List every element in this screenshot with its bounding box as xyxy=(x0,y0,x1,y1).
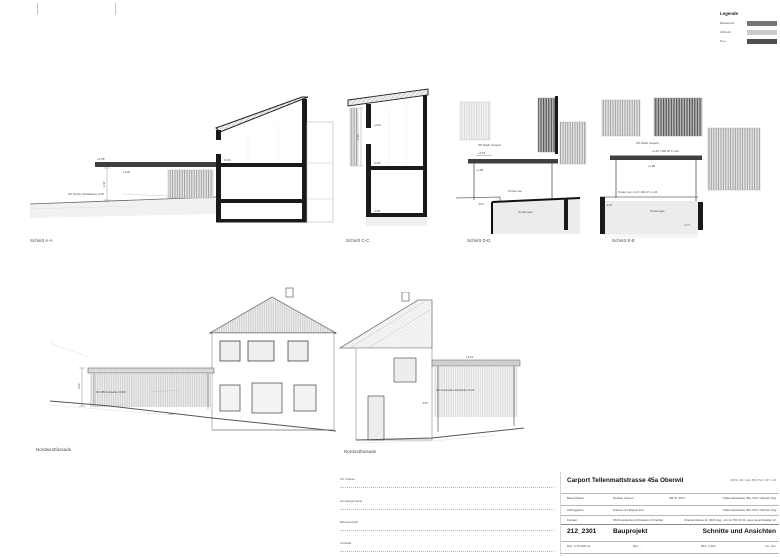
carport-elevation: 2.60 OK FB Rohdecke ±0.00 -0.87 xyxy=(50,343,214,416)
meta-rev: Rev.: - xyxy=(633,544,641,548)
title-block: Carport Tellenmattstrasse 45a Oberwil GB… xyxy=(560,472,779,556)
legend: Legende Bestehend Abbruch Neu xyxy=(720,11,778,47)
meta-scale: Mst.: 1:100 xyxy=(701,544,715,548)
level-annotation: -0.87 xyxy=(478,202,484,206)
divider xyxy=(561,524,779,525)
carport-section: OK Dach Carport +2.15 / 492.35 m.ü.M. +1… xyxy=(610,141,702,204)
level-annotation: +1.96 xyxy=(648,164,656,168)
level-annotation: +2.20 xyxy=(123,170,131,174)
fold-mark xyxy=(115,3,116,15)
legend-label-abbruch: Abbruch xyxy=(720,30,731,34)
row-address: Tellenmattstrasse 45a, 6317 Oberwil, Zug xyxy=(723,508,776,512)
dimension-annotation: 2.62 xyxy=(356,134,360,140)
house-elevation xyxy=(340,292,432,440)
nordostfassade-drawing: +2.15 OK Fussboden Rohdecke ±0.00 -0.87 xyxy=(338,292,528,454)
row-value: NM Kussbacher Architekten mb bachat xyxy=(613,518,663,522)
legend-row: Abbruch xyxy=(720,29,778,38)
caption-schnitt-ee: Schnitt E-E xyxy=(612,238,635,243)
signature-line xyxy=(340,551,554,552)
project-title: Carport Tellenmattstrasse 45a Oberwil xyxy=(567,477,683,484)
level-annotation: +2.15 / 492.35 m.ü.M. xyxy=(652,149,680,153)
legend-row: Bestehend xyxy=(720,20,778,29)
level-annotation: +2.15 xyxy=(478,151,486,155)
level-annotation: OK FB Rohdecke ±0.00 xyxy=(96,390,126,394)
signature-label-bauherrschaft: Bauherrschaft xyxy=(340,520,358,524)
level-annotation: ±0.00 xyxy=(374,161,381,165)
terrain: Terrain neu -0.10 / 492.27 m.ü.M. Terrai… xyxy=(600,190,703,238)
terrain-annotation: Terrain neu -0.10 / 492.27 m.ü.M. xyxy=(618,190,658,194)
level-annotation: -0.87 xyxy=(422,401,428,405)
legend-row: Neu xyxy=(720,38,778,47)
legend-title: Legende xyxy=(720,11,778,16)
row-address: Tellenmattstrasse 45a, 6317 Oberwil, Zug xyxy=(723,496,776,500)
caption-nordostfassade: Nordostfassade xyxy=(344,449,376,454)
house-elevation xyxy=(210,288,336,430)
terrain-annotation: OK Terrain Verkleidung -0.02 xyxy=(68,192,104,196)
terrain-annotation: Terrain neu xyxy=(508,189,522,193)
divider xyxy=(561,541,779,542)
terrain-annotation: Terrain gew. xyxy=(518,210,533,214)
signature-line xyxy=(340,530,554,531)
nordwestfassade-drawing: 2.60 OK FB Rohdecke ±0.00 -0.87 xyxy=(50,285,340,453)
caption-schnitt-cc: Schnitt C-C xyxy=(346,238,370,243)
caption-schnitt-aa: Schnitt A-A xyxy=(30,238,53,243)
schnitt-cc-drawing: 2.62 +2.69 ±0.00 -0.28 xyxy=(344,82,436,238)
fold-mark xyxy=(37,3,38,15)
row-label: Kontakt xyxy=(567,518,577,522)
caption-schnitt-dd: Schnitt D-D xyxy=(467,238,491,243)
level-annotation: +2.35 xyxy=(97,157,105,161)
schnitt-dd-drawing: OK Dach Carport +2.15 +1.98 Terrain neu … xyxy=(452,92,588,238)
meta-format: Gr.: A2+ xyxy=(765,544,776,548)
dimension-annotation: 2.60 xyxy=(77,383,81,389)
signature-line xyxy=(340,509,554,510)
level-annotation: +2.69 xyxy=(374,123,381,127)
terrain xyxy=(30,197,216,218)
carport-elevation: +2.15 OK Fussboden Rohdecke ±0.00 -0.87 xyxy=(422,355,520,432)
sheet-title: Schnitte und Ansichten xyxy=(703,528,776,535)
caption-nordwestfassade: Nordwestfassade xyxy=(36,447,71,452)
row-label: Auftraggeber xyxy=(567,508,584,512)
divider xyxy=(561,505,779,506)
schnitt-ee-drawing: OK Dach Carport +2.15 / 492.35 m.ü.M. +1… xyxy=(598,92,766,240)
level-annotation: ±0.00 xyxy=(224,158,231,162)
project-number: 212_2301 xyxy=(567,528,596,535)
legend-label-neu: Neu xyxy=(720,39,726,43)
signature-label-architekt: Architekt xyxy=(340,541,351,545)
house-section: ±0.00 xyxy=(216,97,333,223)
row-value: Andrea und Raquel Frei xyxy=(613,508,644,512)
terrain-annotation: Terrain gew. xyxy=(650,209,665,213)
plan-sheet: Legende Bestehend Abbruch Neu +2.35 xyxy=(0,0,780,558)
parcel-info: GB Nr. 404 / Geb. 636 / Parz. 427 / 4.M xyxy=(731,479,776,482)
roof-annotation: OK Dach Carport xyxy=(636,141,659,145)
meta-date: Dat.: 3.11.2021 lw xyxy=(567,544,590,548)
signature-block: Ort / Datum Grundeigentümer Bauherrschaf… xyxy=(338,472,557,556)
roof-annotation: OK Dach Carport xyxy=(478,143,501,147)
legend-swatch-neu xyxy=(747,39,777,44)
signature-label-ort-datum: Ort / Datum xyxy=(340,477,355,481)
level-annotation: OK Fussboden Rohdecke ±0.00 xyxy=(436,388,475,392)
row-address: Chamerstrasse 11, 6300 Zug, +41 41 780 0… xyxy=(684,518,776,522)
row-label: Bauvorhaben xyxy=(567,496,584,500)
row-extra: GB Nr. 2971 xyxy=(669,496,685,500)
level-annotation: +1.98 xyxy=(476,168,484,172)
carport-section: +2.35 +2.20 2.37 OK Terrain Verkleidung … xyxy=(68,157,218,200)
level-annotation: +2.15 xyxy=(466,355,474,359)
dimension-annotation: 2.37 xyxy=(102,181,106,187)
legend-label-bestehend: Bestehend xyxy=(720,21,734,25)
row-value: Neubau Carport xyxy=(613,496,634,500)
legend-swatch-bestehend xyxy=(747,21,777,26)
level-annotation: -0.22 xyxy=(606,203,612,207)
phase-label: Bauprojekt xyxy=(613,528,647,535)
level-annotation: -1.77 xyxy=(684,223,690,227)
level-annotation: -0.28 xyxy=(374,209,380,213)
schnitt-aa-drawing: +2.35 +2.20 2.37 OK Terrain Verkleidung … xyxy=(28,88,340,240)
signature-label-grundeigentuemer: Grundeigentümer xyxy=(340,499,363,503)
signature-line xyxy=(340,487,554,488)
divider xyxy=(561,493,779,494)
house-section: 2.62 +2.69 ±0.00 -0.28 xyxy=(348,89,428,226)
divider xyxy=(561,515,779,516)
divider xyxy=(561,553,779,554)
terrain: Terrain neu Terrain gew. -0.87 xyxy=(456,189,580,234)
legend-swatch-abbruch xyxy=(747,30,777,35)
existing-building xyxy=(602,98,760,190)
